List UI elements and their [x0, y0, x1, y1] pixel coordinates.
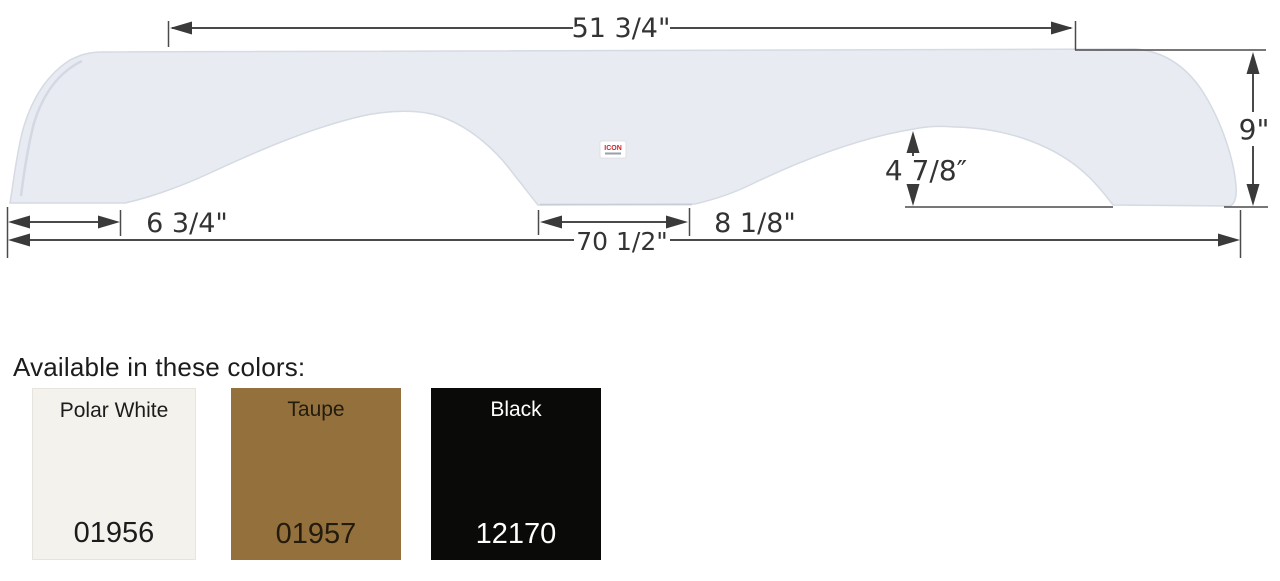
icon-sticker-subtext [605, 153, 621, 155]
arrowhead-down [1247, 184, 1260, 206]
arrowhead-up [1247, 52, 1260, 74]
swatch-code: 01957 [231, 518, 401, 551]
fender-skirt-drawing: ICON 51 3/4" 9" 4 7/8″ 6 3/4" [0, 0, 1280, 300]
available-colors-heading: Available in these colors: [13, 352, 305, 383]
dim-label-top-width: 51 3/4" [572, 13, 671, 44]
dim-label-overall-width: 70 1/2" [576, 227, 668, 256]
dim-label-arch-depth: 4 7/8″ [885, 154, 967, 187]
icon-brand-text: ICON [604, 145, 622, 152]
swatch-code: 01956 [33, 517, 195, 550]
arrowhead-left [8, 216, 30, 229]
arrowhead-right [666, 216, 688, 229]
dim-label-left-end-width: 6 3/4" [146, 208, 228, 239]
dim-label-right-height: 9" [1239, 113, 1270, 146]
fender-skirt-silhouette [10, 49, 1236, 206]
dim-label-center-width: 8 1/8" [714, 208, 796, 239]
swatch-name: Black [431, 398, 601, 422]
arrowhead-right [1218, 234, 1240, 247]
fender-skirt-diagram: ICON 51 3/4" 9" 4 7/8″ 6 3/4" [0, 0, 1280, 300]
color-swatch-polar-white: Polar White 01956 [32, 388, 196, 560]
icon-brand-sticker: ICON [600, 141, 626, 158]
color-swatch-taupe: Taupe 01957 [231, 388, 401, 560]
arrowhead-up [907, 131, 920, 153]
arrowhead-down [907, 184, 920, 206]
dimension-top-width: 51 3/4" [169, 13, 1076, 50]
arrowhead-right [1051, 22, 1073, 35]
arrowhead-left [8, 234, 30, 247]
arrowhead-right [98, 216, 120, 229]
swatch-code: 12170 [431, 518, 601, 551]
arrowhead-left [170, 22, 192, 35]
swatch-name: Taupe [231, 398, 401, 422]
swatch-name: Polar White [33, 399, 195, 423]
dimension-left-end-width: 6 3/4" [8, 207, 228, 258]
color-swatch-black: Black 12170 [431, 388, 601, 560]
arrowhead-left [540, 216, 562, 229]
